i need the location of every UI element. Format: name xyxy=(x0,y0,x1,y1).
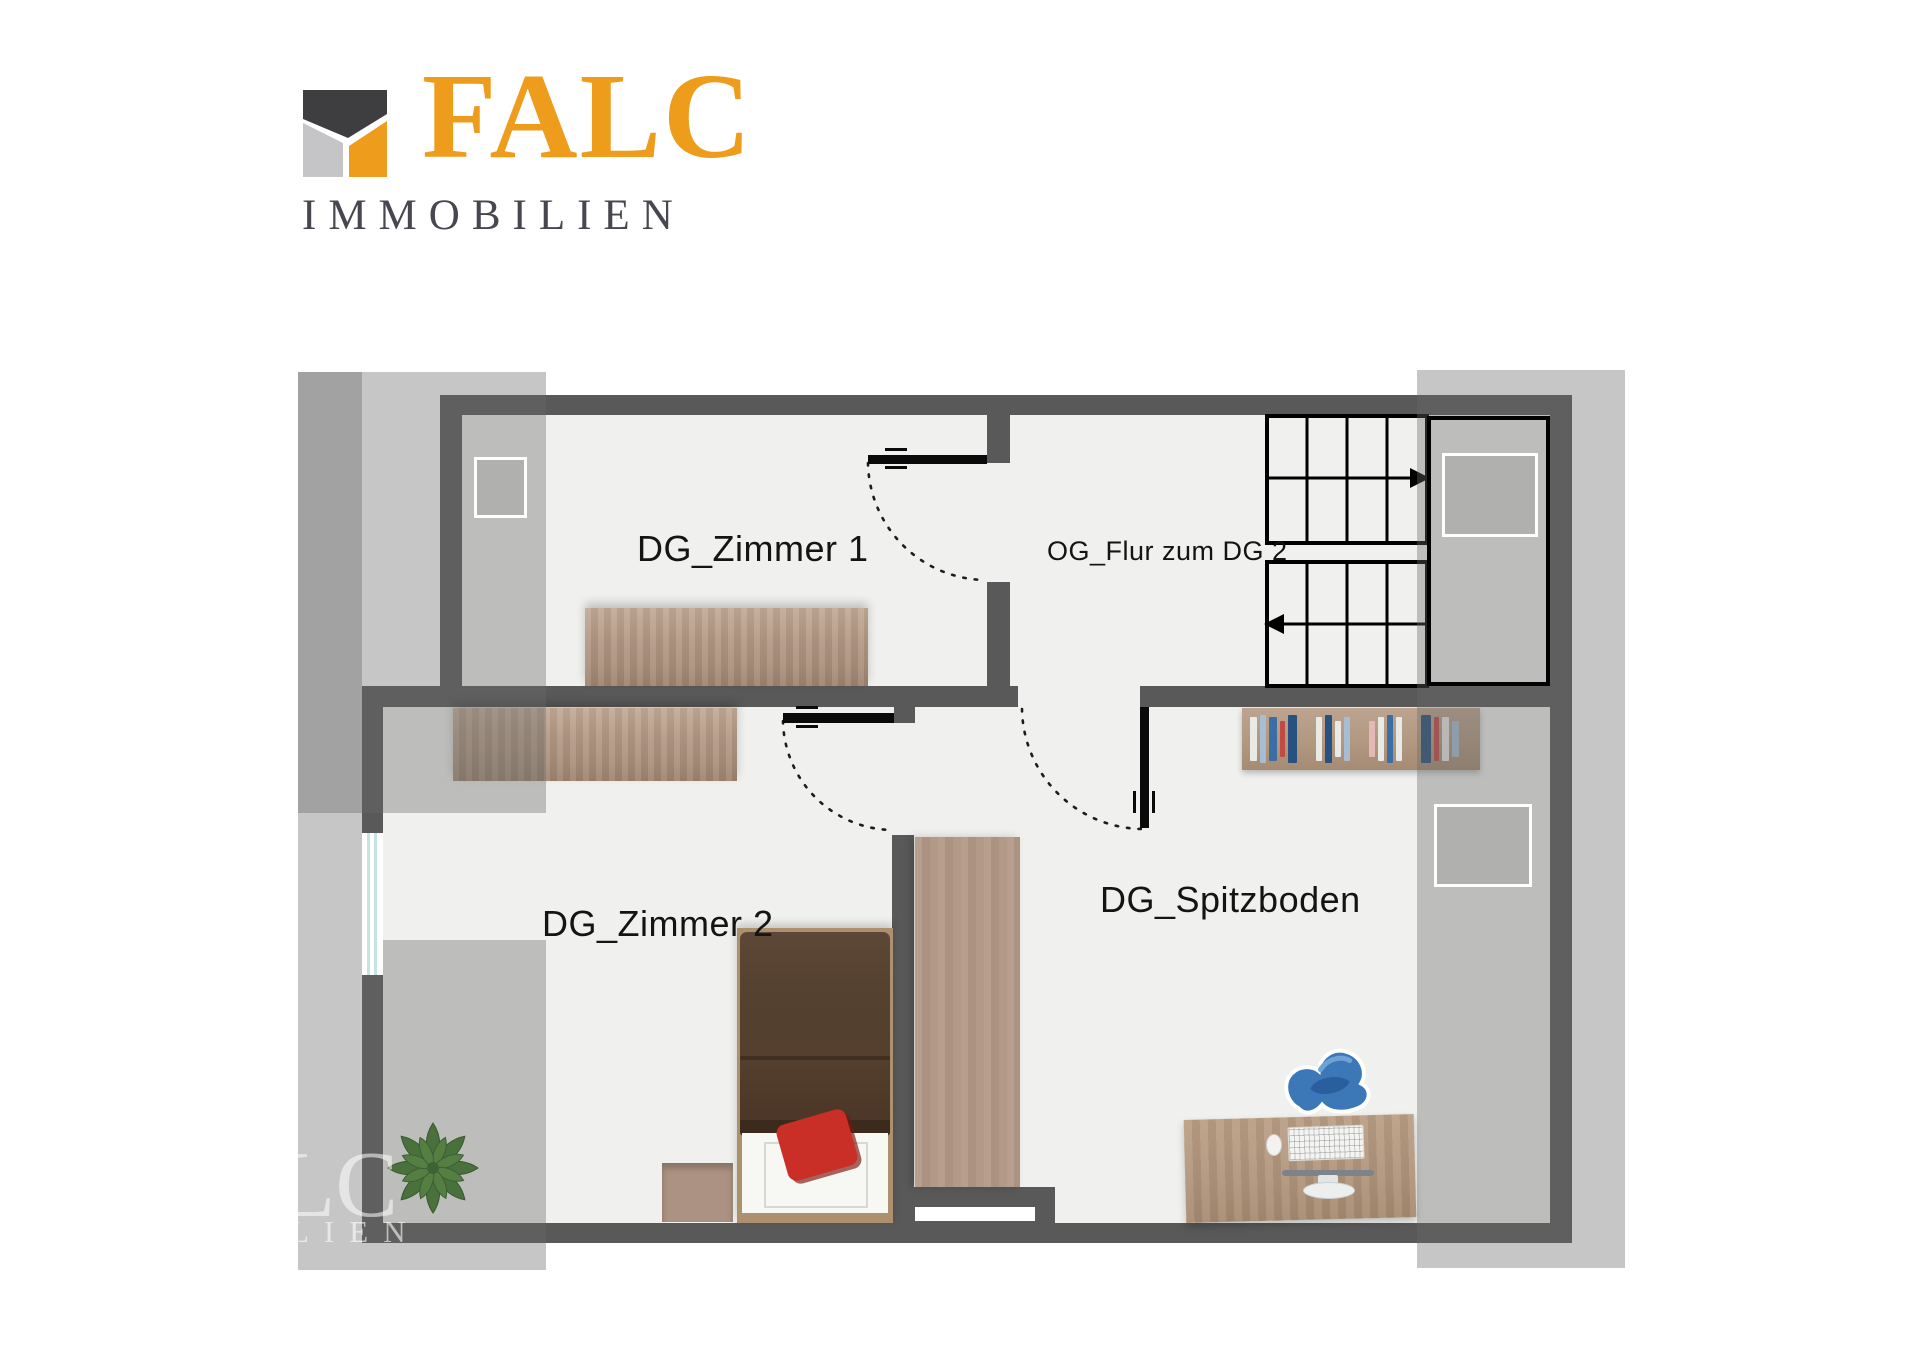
door-arc-zimmer2 xyxy=(783,721,892,830)
door-leaf-zimmer2 xyxy=(783,713,894,723)
stairs-lower-flight xyxy=(1267,562,1427,686)
skylight-spitzboden xyxy=(1434,804,1532,887)
skylight-zimmer1 xyxy=(474,457,527,518)
window-bottom-wall xyxy=(915,1207,1035,1221)
door-handle-zimmer2-a xyxy=(796,706,818,709)
room-label-zimmer1: DG_Zimmer 1 xyxy=(637,528,869,570)
floor-plan-page: FALC IMMOBILIEN xyxy=(0,0,1920,1357)
door-leaf-spitzboden xyxy=(1140,707,1149,828)
door-arc-spitzboden xyxy=(1022,709,1142,829)
room-label-flur: OG_Flur zum DG 2 xyxy=(1047,536,1288,567)
door-arc-zimmer1 xyxy=(868,463,985,580)
roof-overlay-top-left xyxy=(298,372,546,813)
stairs-upper-flight xyxy=(1267,416,1427,543)
door-handle-spitzboden-a xyxy=(1133,791,1136,813)
door-handle-zimmer1-b xyxy=(885,466,907,469)
watermark-text-small: LIEN xyxy=(290,1216,421,1247)
door-handle-spitzboden-b xyxy=(1152,791,1155,813)
door-handle-zimmer1-a xyxy=(885,448,907,451)
room-label-zimmer2: DG_Zimmer 2 xyxy=(542,903,774,945)
window-left-wall xyxy=(362,833,383,975)
skylight-landing xyxy=(1442,453,1538,537)
office-chair-icon xyxy=(1283,1048,1370,1117)
door-handle-zimmer2-b xyxy=(796,725,818,728)
door-leaf-zimmer1 xyxy=(868,455,987,464)
room-label-spitzboden: DG_Spitzboden xyxy=(1100,879,1361,921)
